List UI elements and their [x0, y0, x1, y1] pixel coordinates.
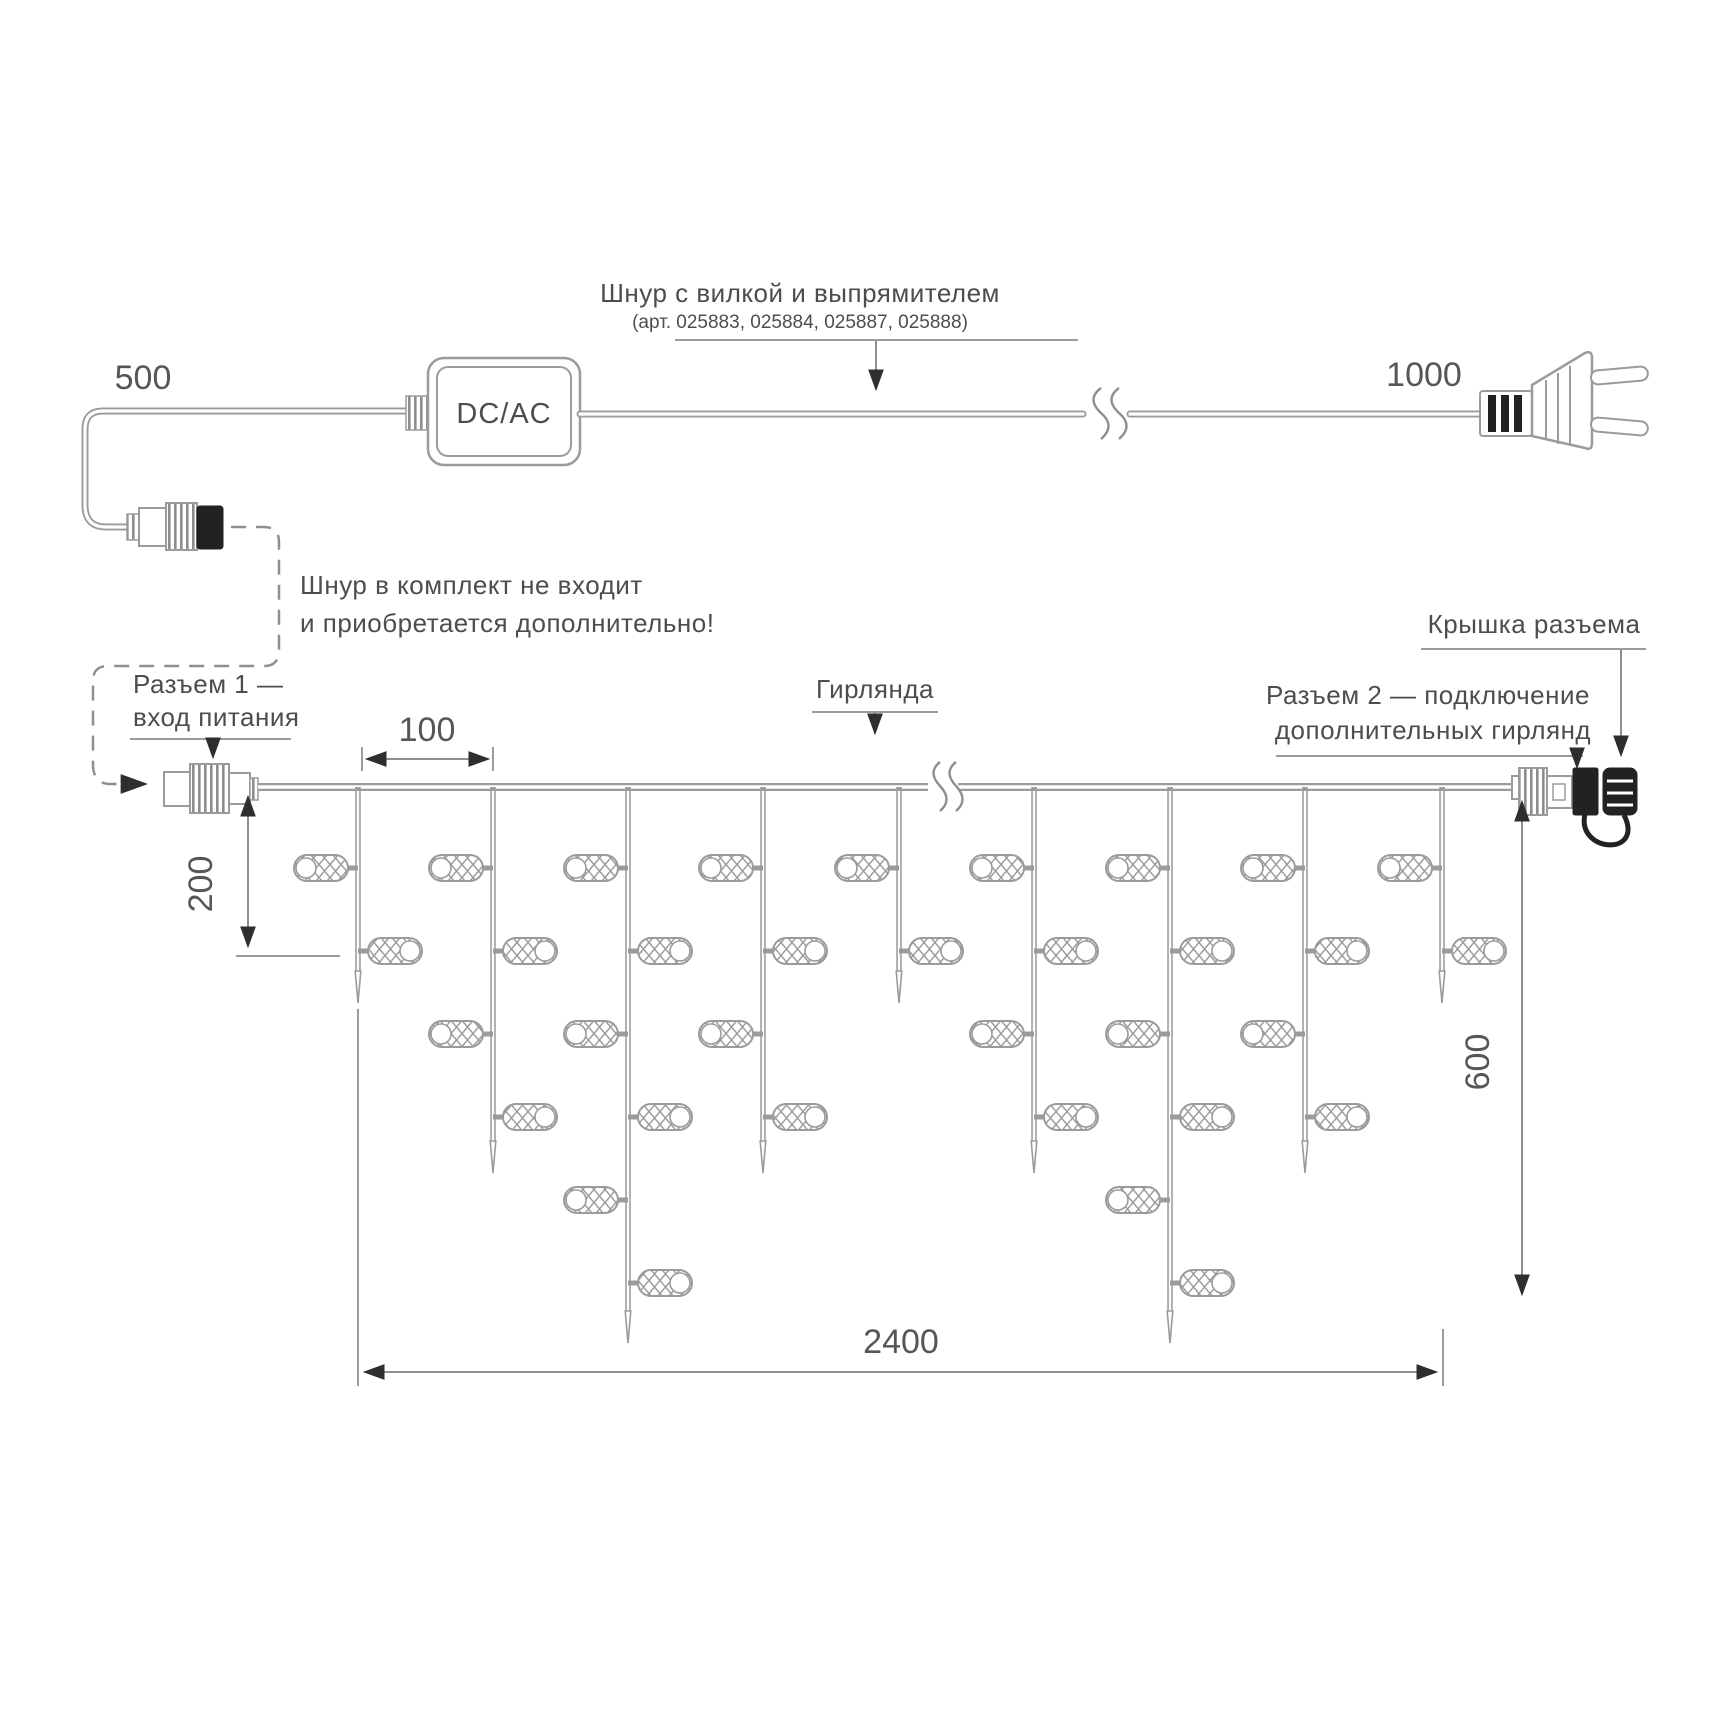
converter-inlet-nub	[406, 396, 428, 430]
led-lens	[1212, 1273, 1232, 1293]
plug-ferrule-stripe	[1514, 395, 1522, 432]
note-line2: и приобретается дополнительно!	[300, 608, 714, 638]
drop-tip	[1439, 971, 1445, 1003]
led-lens	[1484, 941, 1504, 961]
cord-output-connector	[127, 503, 223, 550]
led-lens	[941, 941, 961, 961]
led-lens	[1108, 1190, 1128, 1210]
led-lens	[566, 858, 586, 878]
led-lens	[701, 1024, 721, 1044]
drop-tip	[490, 1141, 496, 1173]
led-lens	[837, 858, 857, 878]
icicle-drop-3	[564, 787, 692, 1343]
icicle-drop-7	[1106, 787, 1234, 1343]
led-lens	[535, 1107, 555, 1127]
drop-tip	[1167, 1311, 1173, 1343]
cord-label: Шнур с вилкой и выпрямителем	[600, 278, 1000, 308]
drop-tip	[760, 1141, 766, 1173]
drop-tip	[1031, 1141, 1037, 1173]
drop-tip	[625, 1311, 631, 1343]
connector1-label-line2: вход питания	[133, 702, 299, 732]
dim-2400-label: 2400	[863, 1323, 939, 1361]
connector-ferrule	[127, 514, 139, 540]
plug-ferrule-stripe	[1488, 395, 1496, 432]
connector1-body	[229, 773, 250, 804]
garland-label: Гирлянда	[816, 674, 934, 704]
led-lens	[701, 858, 721, 878]
plug-body	[1532, 352, 1592, 449]
connector2-ferrule	[1512, 776, 1519, 799]
icicle-drops-layer	[294, 787, 1506, 1343]
connector2-label-line2: дополнительных гирлянд	[1275, 715, 1591, 745]
cord-break-mark	[1094, 388, 1109, 439]
note-line1: Шнур в комплект не входит	[300, 570, 643, 600]
garland-output-connector	[1512, 768, 1637, 845]
cord-break-mark	[1112, 388, 1127, 439]
connector1-ring	[250, 778, 258, 800]
led-lens	[670, 1273, 690, 1293]
drop-tip	[1302, 1141, 1308, 1173]
led-lens	[805, 941, 825, 961]
cord-label-group: Шнур с вилкой и выпрямителем (арт. 02588…	[600, 278, 1078, 388]
converter-label: DC/AC	[456, 398, 551, 430]
connector-ribbed-nut	[166, 503, 197, 550]
drop-tip	[896, 971, 902, 1003]
icicle-drop-2	[429, 787, 557, 1173]
led-lens	[431, 1024, 451, 1044]
connector1-label-line1: Разъем 1 —	[133, 669, 284, 699]
plug-prong-top	[1590, 366, 1648, 385]
plug-ferrule-stripe	[1501, 395, 1509, 432]
diagram-page: Шнур с вилкой и выпрямителем (арт. 02588…	[0, 0, 1720, 1720]
dim-2400-group: 2400	[358, 1009, 1443, 1386]
garland-label-group: Гирлянда	[812, 674, 938, 732]
led-lens	[670, 941, 690, 961]
led-lens	[1108, 858, 1128, 878]
dashed-connection-route	[93, 527, 279, 784]
led-lens	[972, 858, 992, 878]
dim-200-label: 200	[182, 856, 220, 913]
connector1-plug-box	[164, 772, 190, 806]
connector-black-cap	[197, 506, 223, 549]
connector2-ribbed-nut	[1519, 768, 1547, 815]
dim-100-label: 100	[399, 711, 456, 749]
led-lens	[1243, 1024, 1263, 1044]
cord-left-run	[85, 411, 420, 527]
cap-strap	[1584, 814, 1628, 845]
led-lens	[566, 1190, 586, 1210]
led-lens	[566, 1024, 586, 1044]
connector2-black-collar	[1573, 768, 1598, 815]
power-cord-assembly: Шнур с вилкой и выпрямителем (арт. 02588…	[85, 278, 1648, 638]
plug-prong-bottom	[1590, 417, 1648, 436]
cord-articles: (арт. 025883, 025884, 025887, 025888)	[632, 312, 968, 333]
led-lens	[1380, 858, 1400, 878]
led-lens	[1212, 1107, 1232, 1127]
icicle-drop-1	[294, 787, 422, 1003]
led-lens	[1243, 858, 1263, 878]
led-lens	[1347, 1107, 1367, 1127]
garland-wiring-diagram: Шнур с вилкой и выпрямителем (арт. 02588…	[0, 0, 1720, 1720]
dim-100-group: 100	[362, 711, 493, 771]
connector2-body	[1547, 776, 1572, 808]
led-lens	[972, 1024, 992, 1044]
power-plug	[1480, 352, 1648, 449]
connector-body	[139, 508, 166, 546]
icicle-drop-9	[1378, 787, 1506, 1003]
dim-600-group: 600	[1459, 803, 1522, 1293]
connector1-label-group: Разъем 1 — вход питания	[130, 669, 299, 756]
dim-1000-label: 1000	[1386, 356, 1462, 394]
drop-tip	[355, 971, 361, 1003]
dim-500-label: 500	[115, 359, 172, 397]
garland-input-connector	[164, 764, 258, 813]
icicle-drop-6	[970, 787, 1098, 1173]
cord-note: Шнур в комплект не входит и приобретаетс…	[300, 570, 714, 638]
led-lens	[1212, 941, 1232, 961]
cord-left-run-core	[85, 411, 420, 527]
icicle-drop-5	[835, 787, 963, 1003]
connector2-label-line1: Разъем 2 — подключение	[1266, 680, 1590, 710]
cap-label: Крышка разъема	[1428, 609, 1641, 639]
led-lens	[1076, 941, 1096, 961]
led-lens	[1076, 1107, 1096, 1127]
led-lens	[805, 1107, 825, 1127]
connector1-ribbed-nut	[190, 764, 229, 813]
led-lens	[400, 941, 420, 961]
led-lens	[1347, 941, 1367, 961]
dcac-converter: DC/AC	[406, 358, 580, 465]
dim-600-label: 600	[1459, 1034, 1497, 1091]
connector2-label-group: Разъем 2 — подключение дополнительных ги…	[1266, 680, 1591, 766]
led-lens	[431, 858, 451, 878]
garland-assembly: Разъем 1 — вход питания 100	[93, 527, 1646, 1386]
icicle-drop-4	[699, 787, 827, 1173]
led-lens	[1108, 1024, 1128, 1044]
icicle-drop-8	[1241, 787, 1369, 1173]
led-lens	[670, 1107, 690, 1127]
led-lens	[535, 941, 555, 961]
led-lens	[296, 858, 316, 878]
